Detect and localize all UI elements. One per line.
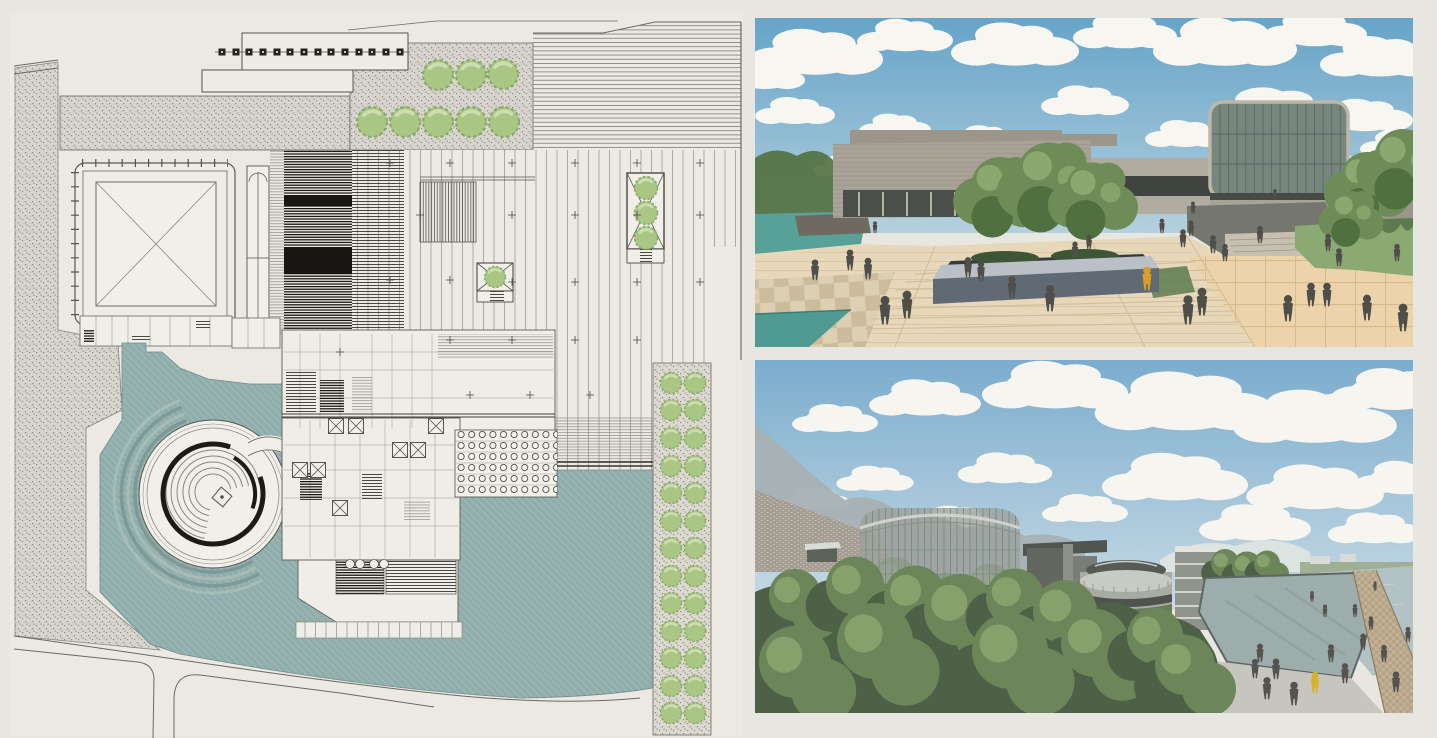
north-grove-row1 <box>423 59 518 90</box>
north-grove-row2 <box>357 107 519 137</box>
plan-annex-rooms <box>80 316 280 348</box>
plan-roof-hatch-bands <box>247 150 404 335</box>
rendering-plaza-view <box>755 18 1413 347</box>
rendering-aerial-view <box>755 360 1413 713</box>
presentation-board <box>0 0 1437 738</box>
amphitheatre-bridge <box>248 443 286 449</box>
plan-ne-striped-band <box>533 22 741 150</box>
rooftop-basin <box>1199 573 1379 678</box>
plan-great-hall <box>75 163 235 325</box>
site-plan <box>0 0 746 738</box>
cafe-tables <box>455 430 557 497</box>
